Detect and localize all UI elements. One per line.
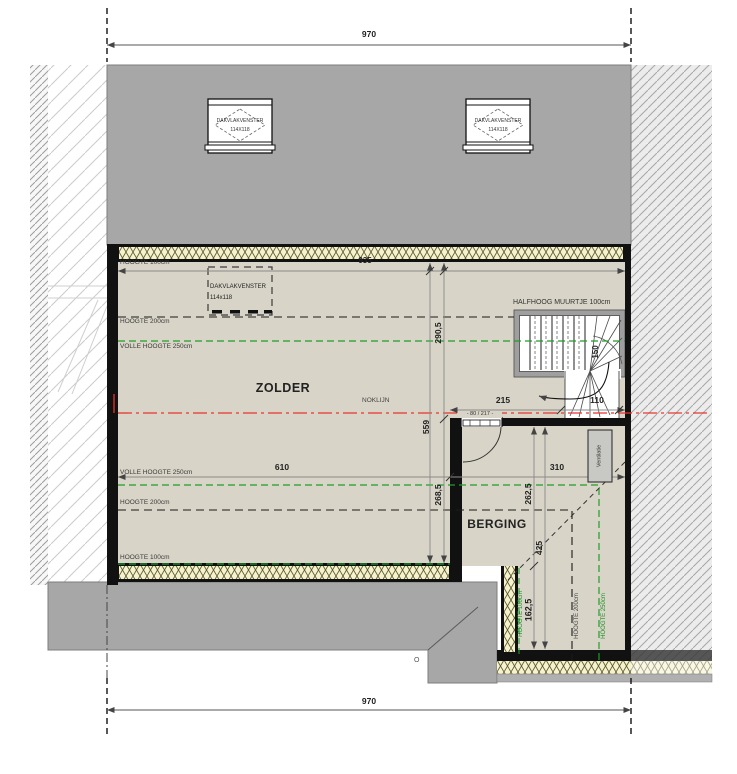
roof-window-left-name: DAKVLAKVENSTER — [208, 119, 272, 124]
corner-marker: O — [414, 657, 419, 664]
height-line-label-bottom-100: HOOGTE 100cm — [120, 555, 169, 562]
dim-stair-top: 215 — [488, 396, 518, 405]
height-line-label-top-100: HOOGTE 100cm — [120, 260, 169, 267]
right-exterior-hatch — [631, 65, 712, 660]
wall-right — [625, 244, 631, 660]
planned-window-size: 114x118 — [210, 295, 232, 301]
dim-berging-width: 310 — [537, 463, 577, 472]
upper-roof-plane — [107, 65, 631, 245]
lower-roof-plane — [48, 582, 497, 683]
dim-door: - 80 / 217 - — [458, 412, 502, 418]
half-wall-label: HALFHOOG MUURTJE 100cm — [513, 299, 611, 306]
dim-berging-depth: 262,5 — [524, 483, 533, 504]
dim-overall-top: 970 — [344, 30, 394, 39]
wall-berging-bottom-ext — [631, 650, 712, 661]
insulation-berging-bottom — [497, 661, 631, 674]
roof-window-right-size: 114X118 — [466, 128, 530, 133]
height-line-label-top-200: HOOGTE 200cm — [120, 319, 169, 326]
height-line-label-right-100: HOOGTE 100cm — [518, 591, 524, 637]
floor-plan-canvas: 970 970 935 610 310 215 110 - 80 / 217 -… — [0, 0, 737, 774]
height-line-label-right-250: HOOGTE 250cm — [601, 593, 607, 639]
dim-overall-bottom: 970 — [344, 697, 394, 706]
insulation-berging-bottom-ext — [631, 661, 712, 674]
wall-partition — [450, 418, 462, 582]
height-line-label-bottom-250: VOLLE HOOGTE 250cm — [120, 470, 192, 477]
room-label-berging: BERGING — [457, 518, 537, 530]
height-line-label-bottom-200: HOOGTE 200cm — [120, 500, 169, 507]
wall-left — [107, 244, 118, 585]
left-exterior-hatch — [48, 65, 107, 585]
ventilation-label: Ventilatie — [597, 445, 603, 467]
dim-stair-side: 110 — [582, 396, 612, 405]
dim-berging-extension: 162,5 — [525, 599, 534, 622]
dim-left-total: 559 — [422, 420, 431, 434]
insulation-bottom-zolder — [119, 566, 449, 579]
dim-inner-width: 935 — [345, 257, 385, 265]
dim-zolder-width: 610 — [262, 463, 302, 472]
dim-upper-depth: 290,5 — [434, 322, 443, 343]
room-label-zolder: ZOLDER — [243, 382, 323, 395]
height-line-label-right-200: HOOGTE 200cm — [574, 593, 580, 639]
dim-stair-width: 150 — [592, 345, 600, 358]
roof-window-right-name: DAKVLAKVENSTER — [466, 119, 530, 124]
roof-window-right — [463, 99, 533, 153]
plan-drawing — [0, 0, 737, 774]
roof-window-left-size: 114X118 — [208, 128, 272, 133]
planned-window-name: DAKVLAKVENSTER — [210, 284, 266, 290]
ridge-line-label: NOKLIJN — [362, 398, 389, 405]
dim-berging-total: 425 — [535, 541, 544, 555]
left-neighbour-hatch — [30, 65, 48, 585]
dim-lower-depth: 268,5 — [434, 484, 443, 505]
berging-bottom-edge — [497, 674, 712, 682]
roof-window-left — [205, 99, 275, 153]
height-line-label-top-250: VOLLE HOOGTE 250cm — [120, 344, 192, 351]
